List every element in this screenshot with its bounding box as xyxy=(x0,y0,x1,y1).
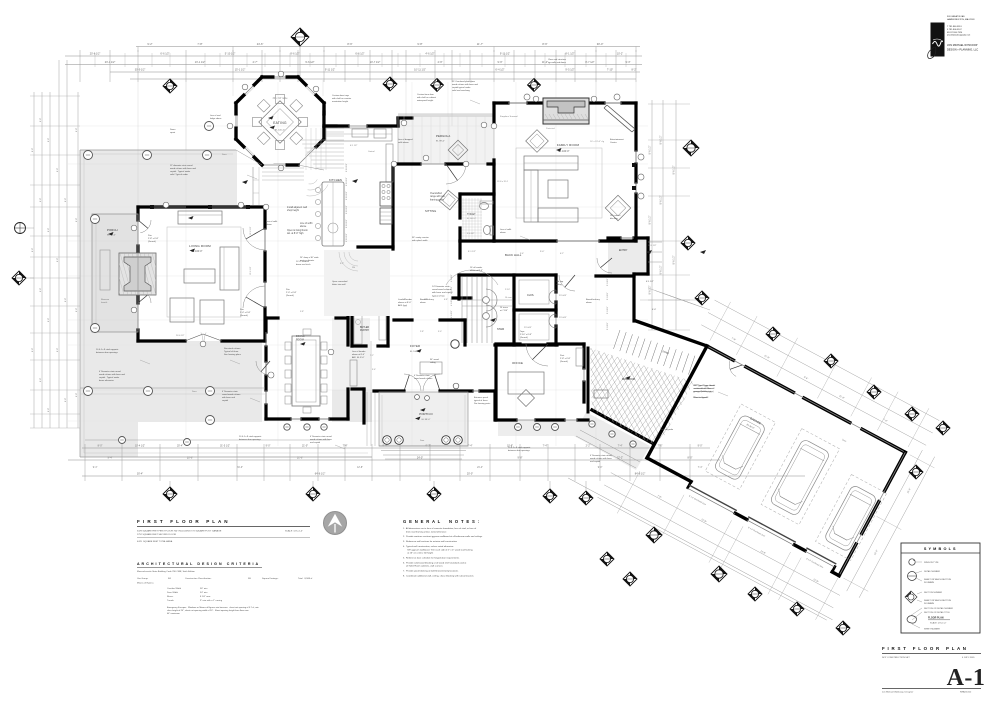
svg-text:G E N E R A L N O T E S :: G E N E R A L N O T E S : xyxy=(403,519,480,524)
svg-text:21'-4": 21'-4" xyxy=(477,467,483,469)
svg-text:9'-8": 9'-8" xyxy=(48,318,50,323)
svg-text:9'-8": 9'-8" xyxy=(65,398,67,403)
svg-text:31'-5 1/2": 31'-5 1/2" xyxy=(220,445,230,448)
svg-text:20'-6 1/2": 20'-6 1/2" xyxy=(90,53,101,56)
svg-text:5'-0 1/2": 5'-0 1/2" xyxy=(467,233,475,235)
svg-text:44" maximum: 44" maximum xyxy=(167,613,180,615)
svg-text:EL 99'-6": EL 99'-6" xyxy=(436,141,445,143)
svg-text:A-1: A-1 xyxy=(947,665,986,691)
svg-text:9'-3": 9'-3" xyxy=(626,61,631,64)
svg-text:ENTRY: ENTRY xyxy=(619,249,628,252)
svg-text:WINDOW TYPE: WINDOW TYPE xyxy=(924,562,939,564)
svg-text:8'-6 1/2": 8'-6 1/2" xyxy=(660,265,663,274)
svg-text:above: above xyxy=(586,302,593,304)
svg-text:5'-8": 5'-8" xyxy=(300,311,304,313)
svg-text:2'6"x6'8": 2'6"x6'8" xyxy=(524,327,532,329)
svg-text:9'-8": 9'-8" xyxy=(40,288,42,293)
svg-text:TOILET: TOILET xyxy=(467,213,476,216)
svg-text:F I R S T F L O O R P L A: F I R S T F L O O R P L A N xyxy=(882,646,967,651)
svg-text:7'-4": 7'-4" xyxy=(618,445,623,448)
svg-text:9'-8": 9'-8" xyxy=(76,128,78,133)
svg-text:3'-10 1/2": 3'-10 1/2" xyxy=(346,177,348,186)
svg-text:8'-6 1/2": 8'-6 1/2" xyxy=(673,255,676,264)
svg-text:SECTION NUMBER: SECTION NUMBER xyxy=(924,592,943,594)
svg-text:7'-4": 7'-4" xyxy=(543,445,548,448)
svg-text:20'-0": 20'-0" xyxy=(467,473,473,476)
svg-text:6'-6 1/2": 6'-6 1/2" xyxy=(355,53,364,56)
svg-text:15'-1 1/2": 15'-1 1/2" xyxy=(235,69,246,72)
svg-text:T 781.806.5551: T 781.806.5551 xyxy=(947,26,962,28)
svg-text:F 781.806.5167: F 781.806.5167 xyxy=(947,29,963,31)
svg-text:10'-1 1/2": 10'-1 1/2" xyxy=(648,245,657,247)
svg-text:2'-10": 2'-10" xyxy=(505,289,510,291)
svg-text:2'6"x6'8": 2'6"x6'8" xyxy=(559,295,567,297)
svg-text:8'-1 1/2": 8'-1 1/2" xyxy=(565,53,574,56)
svg-text:8 1/4" max: 8 1/4" max xyxy=(200,596,211,598)
svg-text:2'-0" x 6'-8": 2'-0" x 6'-8" xyxy=(286,292,297,294)
svg-text:3'-10 1/2": 3'-10 1/2" xyxy=(346,191,348,200)
svg-text:SHEET ON WHICH SECTION: SHEET ON WHICH SECTION xyxy=(924,600,952,602)
svg-text:9'-11 1/2": 9'-11 1/2" xyxy=(325,69,335,72)
svg-text:3'-10 1/2": 3'-10 1/2" xyxy=(346,205,348,214)
svg-text:9'-8": 9'-8" xyxy=(32,348,34,353)
svg-text:9'-6 1/2": 9'-6 1/2" xyxy=(305,61,314,64)
svg-text:4'-9": 4'-9" xyxy=(438,61,443,64)
svg-text:23'-1 1/2": 23'-1 1/2" xyxy=(105,61,116,64)
svg-text:9'-8": 9'-8" xyxy=(57,258,59,263)
svg-text:BUTLER: BUTLER xyxy=(360,327,369,329)
svg-text:9'-6 1/2": 9'-6 1/2" xyxy=(290,53,299,56)
svg-text:7'-4": 7'-4" xyxy=(468,445,473,448)
svg-text:KITCHEN: KITCHEN xyxy=(329,178,342,182)
svg-text:31'-0": 31'-0" xyxy=(237,467,243,469)
svg-text:2'6"x6'8": 2'6"x6'8" xyxy=(559,317,567,319)
svg-text:12'-2": 12'-2" xyxy=(617,457,623,460)
svg-text:SHEET ON WHICH SECTION: SHEET ON WHICH SECTION xyxy=(924,579,952,581)
svg-text:PORCH: PORCH xyxy=(107,228,118,232)
svg-text:6'-4 1/2": 6'-4 1/2" xyxy=(495,69,504,72)
svg-text:6'-1 1/2": 6'-1 1/2" xyxy=(350,145,358,147)
svg-text:Boxed balcony: Boxed balcony xyxy=(420,299,435,301)
svg-text:8'-1 1/2": 8'-1 1/2" xyxy=(468,251,476,253)
svg-text:7'-6": 7'-6" xyxy=(658,445,663,448)
svg-text:2'-8" x 6'-8": 2'-8" x 6'-8" xyxy=(148,238,159,240)
svg-text:8'-6 1/2": 8'-6 1/2" xyxy=(660,195,663,204)
svg-text:30'-9 1/2": 30'-9 1/2" xyxy=(135,69,146,72)
svg-text:9'-8": 9'-8" xyxy=(518,457,523,460)
svg-text:5'-0 1/2": 5'-0 1/2" xyxy=(607,292,609,300)
svg-text:16' x 19'-6" clg: 16' x 19'-6" clg xyxy=(590,141,605,143)
svg-text:9'-0": 9'-0" xyxy=(698,445,703,448)
svg-text:10'-2": 10'-2" xyxy=(617,53,623,56)
svg-text:9'-8": 9'-8" xyxy=(65,198,67,203)
svg-text:9'-8": 9'-8" xyxy=(48,138,50,143)
svg-text:S Y M B O L S: S Y M B O L S xyxy=(924,547,956,551)
svg-text:CLOS.: CLOS. xyxy=(527,294,535,297)
svg-text:4'-6 1/2": 4'-6 1/2" xyxy=(451,310,453,318)
svg-text:7'-10": 7'-10" xyxy=(607,69,613,72)
svg-text:FLOOR PLAN: FLOOR PLAN xyxy=(928,617,944,620)
svg-text:Open concealed: Open concealed xyxy=(332,281,348,283)
svg-text:8'-0": 8'-0" xyxy=(98,445,103,448)
svg-text:2'-8" x 6'-8": 2'-8" x 6'-8" xyxy=(560,358,571,360)
svg-text:8'-0": 8'-0" xyxy=(688,457,693,460)
svg-text:OFFICE: OFFICE xyxy=(512,361,523,365)
svg-text:above: above xyxy=(420,302,427,304)
svg-text:7'-4": 7'-4" xyxy=(343,445,348,448)
svg-text:3'-0": 3'-0" xyxy=(438,331,442,333)
svg-text:4'-0": 4'-0" xyxy=(652,309,656,311)
svg-text:3'-6": 3'-6" xyxy=(520,253,524,255)
svg-text:11'-2": 11'-2" xyxy=(542,61,548,64)
svg-text:14 riser: 14 riser xyxy=(505,297,512,299)
svg-text:Down: Down xyxy=(170,129,176,131)
svg-text:LIVING ROOM: LIVING ROOM xyxy=(189,244,211,248)
svg-text:2'-10" x 6'-8": 2'-10" x 6'-8" xyxy=(520,334,532,336)
svg-text:above: above xyxy=(266,224,273,226)
svg-text:16'-2 1/2": 16'-2 1/2" xyxy=(250,226,252,235)
svg-text:30' x 34" table: 30' x 34" table xyxy=(273,97,289,100)
svg-text:blocking: blocking xyxy=(610,218,619,220)
svg-text:36" min: 36" min xyxy=(200,588,208,590)
svg-text:9'-0": 9'-0" xyxy=(266,445,271,448)
svg-text:Tops: Tops xyxy=(520,331,524,333)
svg-text:5'-0 1/2": 5'-0 1/2" xyxy=(607,322,609,330)
svg-text:9'-8": 9'-8" xyxy=(40,198,42,203)
svg-text:9'-11 1/2": 9'-11 1/2" xyxy=(500,53,510,56)
svg-text:6'-8": 6'-8" xyxy=(444,299,448,301)
svg-text:9'-8": 9'-8" xyxy=(76,393,78,398)
svg-text:3'-6": 3'-6" xyxy=(372,369,376,371)
svg-text:8'-6 1/2": 8'-6 1/2" xyxy=(649,145,652,154)
svg-text:8'-2": 8'-2" xyxy=(632,69,637,72)
svg-text:9'-9": 9'-9" xyxy=(498,61,503,64)
svg-text:4'-7": 4'-7" xyxy=(253,61,258,64)
svg-text:9'-8": 9'-8" xyxy=(57,168,59,173)
svg-text:64'-6 1/2": 64'-6 1/2" xyxy=(315,473,326,476)
svg-text:8'-6 1/2": 8'-6 1/2" xyxy=(649,215,652,224)
svg-text:A R C H I T E C T U R A L D: A R C H I T E C T U R A L D E S I G N C … xyxy=(137,562,259,566)
svg-text:4'-6 1/2": 4'-6 1/2" xyxy=(425,53,434,56)
svg-text:34" min: 34" min xyxy=(200,592,208,594)
svg-text:9'-8": 9'-8" xyxy=(76,218,78,223)
svg-text:STAIR: STAIR xyxy=(497,328,504,331)
svg-text:FOYER: FOYER xyxy=(410,344,420,348)
svg-text:21'-0": 21'-0" xyxy=(302,445,308,448)
svg-text:EL 98'-0": EL 98'-0" xyxy=(422,419,431,421)
svg-text:4'-6 1/2": 4'-6 1/2" xyxy=(451,274,453,282)
svg-text:9'-8": 9'-8" xyxy=(76,308,78,313)
svg-text:JON MICHAEL WYNKOOP: JON MICHAEL WYNKOOP xyxy=(947,44,978,47)
svg-text:PERGOLA: PERGOLA xyxy=(436,134,450,138)
svg-text:9'-8": 9'-8" xyxy=(32,148,34,153)
svg-text:10'-11 1/2": 10'-11 1/2" xyxy=(414,69,426,72)
svg-text:9'-2": 9'-2" xyxy=(340,263,344,265)
svg-text:8'-6 1/2": 8'-6 1/2" xyxy=(649,285,652,294)
svg-text:above: above xyxy=(300,226,307,228)
svg-text:DESIGN + PLANNING, LLC: DESIGN + PLANNING, LLC xyxy=(947,49,978,52)
svg-text:9'-8": 9'-8" xyxy=(57,348,59,353)
svg-text:20'-6 1/2": 20'-6 1/2" xyxy=(176,335,185,337)
svg-text:9'-0": 9'-0" xyxy=(598,467,603,469)
svg-text:7'-2": 7'-2" xyxy=(370,355,374,357)
svg-text:9'-4": 9'-4" xyxy=(93,467,98,469)
svg-text:8'-6 1/2": 8'-6 1/2" xyxy=(660,135,663,144)
svg-text:3'-10 1/2": 3'-10 1/2" xyxy=(346,219,348,228)
svg-text:above: above xyxy=(500,232,507,234)
svg-text:9'-8": 9'-8" xyxy=(48,228,50,233)
svg-text:down see finish: down see finish xyxy=(296,264,311,266)
svg-text:2'-4" x 6'-8": 2'-4" x 6'-8" xyxy=(240,312,251,314)
svg-text:5'-0 1/2": 5'-0 1/2" xyxy=(607,278,609,286)
svg-text:EL 100'-0": EL 100'-0" xyxy=(275,130,285,132)
svg-text:ledge above: ledge above xyxy=(210,118,222,120)
svg-text:SHEET NUMBER: SHEET NUMBER xyxy=(924,629,940,631)
svg-text:20'-4": 20'-4" xyxy=(177,445,183,448)
svg-text:5'-10 1/2": 5'-10 1/2" xyxy=(225,53,236,56)
svg-text:Boxed balcony: Boxed balcony xyxy=(586,299,601,301)
svg-text:9'-8": 9'-8" xyxy=(48,408,50,413)
svg-text:6'-8": 6'-8" xyxy=(402,299,406,301)
svg-text:8'-6 1/2": 8'-6 1/2" xyxy=(673,165,676,174)
svg-text:FAMILY ROOM: FAMILY ROOM xyxy=(557,143,580,147)
svg-text:BACK HALL: BACK HALL xyxy=(505,253,522,257)
svg-text:9'-5 1/2": 9'-5 1/2" xyxy=(565,69,574,72)
svg-text:3'-10 1/2": 3'-10 1/2" xyxy=(346,233,348,242)
svg-text:EATING: EATING xyxy=(273,121,287,125)
svg-text:5'-0 1/2": 5'-0 1/2" xyxy=(607,306,609,314)
svg-text:2'-8": 2'-8" xyxy=(420,331,424,333)
svg-text:6'-2": 6'-2" xyxy=(560,253,564,255)
svg-text:84'-8 1/2": 84'-8 1/2" xyxy=(635,473,646,476)
svg-text:8'-7 1/2": 8'-7 1/2" xyxy=(585,61,594,64)
svg-text:NOT CONSTRUCTION SET: NOT CONSTRUCTION SET xyxy=(882,657,910,659)
svg-text:4'-6 1/2": 4'-6 1/2" xyxy=(451,298,453,306)
svg-text:9'-8": 9'-8" xyxy=(40,118,42,123)
svg-text:10'-4 1/2": 10'-4 1/2" xyxy=(135,445,145,448)
svg-text:10'-7 1/2": 10'-7 1/2" xyxy=(370,61,381,64)
svg-text:PORTICO: PORTICO xyxy=(419,412,433,416)
svg-text:9'-8": 9'-8" xyxy=(65,298,67,303)
svg-text:7'-4": 7'-4" xyxy=(698,467,703,469)
svg-text:9'-8": 9'-8" xyxy=(40,378,42,383)
svg-text:F I R S T F L O O R P L A: F I R S T F L O O R P L A N xyxy=(137,519,228,524)
svg-text:9'-8": 9'-8" xyxy=(32,248,34,253)
svg-text:34" wood: 34" wood xyxy=(430,359,439,361)
svg-text:M 617.555.7324: M 617.555.7324 xyxy=(947,32,963,34)
svg-text:Remove: Remove xyxy=(101,299,110,301)
svg-text:24" deep x 36" wide: 24" deep x 36" wide xyxy=(300,257,319,259)
svg-text:4 JULY 2005: 4 JULY 2005 xyxy=(962,657,975,659)
svg-text:12'-8": 12'-8" xyxy=(357,467,363,469)
svg-text:9'-6": 9'-6" xyxy=(540,251,545,253)
svg-text:DINING: DINING xyxy=(296,335,305,338)
svg-text:6'-6 1/2": 6'-6 1/2" xyxy=(160,53,169,56)
svg-text:Door: Door xyxy=(420,440,425,442)
svg-text:10'-6 1/2": 10'-6 1/2" xyxy=(250,266,252,275)
svg-text:4'-6 1/2": 4'-6 1/2" xyxy=(451,286,453,294)
svg-text:19'-8 x 19'-2: 19'-8 x 19'-2 xyxy=(497,181,509,183)
svg-text:3'-10 1/2": 3'-10 1/2" xyxy=(346,163,348,172)
svg-text:2'-2": 2'-2" xyxy=(586,445,591,448)
svg-text:13'-1 1/2": 13'-1 1/2" xyxy=(195,61,206,64)
svg-text:6'-1 1/2": 6'-1 1/2" xyxy=(646,281,654,283)
svg-text:30'-4": 30'-4" xyxy=(137,473,143,476)
